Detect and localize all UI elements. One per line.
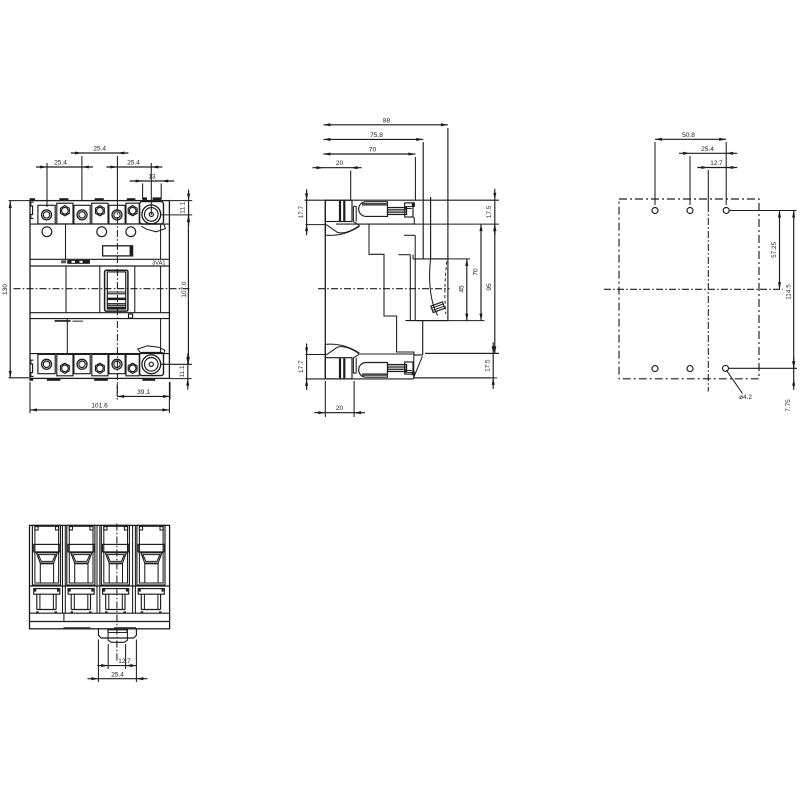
svg-text:57.25: 57.25 [771, 241, 778, 257]
svg-text:12.7: 12.7 [710, 160, 723, 167]
svg-text:11.1: 11.1 [180, 201, 187, 213]
svg-text:70: 70 [369, 147, 377, 154]
svg-text:70: 70 [473, 268, 480, 276]
svg-text:25.4: 25.4 [701, 146, 714, 153]
svg-text:25.4: 25.4 [127, 160, 140, 167]
svg-text:88: 88 [383, 117, 391, 124]
svg-text:17.5: 17.5 [485, 359, 492, 372]
svg-text:95: 95 [486, 283, 493, 291]
svg-text:107.0: 107.0 [181, 281, 188, 297]
svg-text:25.4: 25.4 [111, 671, 124, 678]
svg-text:17.5: 17.5 [486, 205, 493, 218]
svg-text:25.4: 25.4 [93, 146, 106, 153]
svg-text:3VA1: 3VA1 [152, 260, 165, 266]
svg-text:130: 130 [2, 284, 9, 295]
svg-text:7.75: 7.75 [785, 399, 792, 412]
svg-text:75.8: 75.8 [370, 132, 383, 139]
svg-text:20: 20 [336, 160, 344, 167]
svg-text:12.7: 12.7 [118, 658, 131, 665]
svg-text:13: 13 [148, 174, 156, 181]
svg-text:39.1: 39.1 [137, 389, 150, 396]
svg-text:101.6: 101.6 [91, 402, 108, 409]
svg-text:11.1: 11.1 [179, 365, 186, 377]
svg-text:20: 20 [336, 405, 344, 412]
svg-text:50.8: 50.8 [682, 132, 695, 139]
svg-text:17.7: 17.7 [298, 360, 305, 373]
svg-text:25.4: 25.4 [54, 160, 67, 167]
svg-text:17.7: 17.7 [298, 206, 305, 219]
svg-text:114.5: 114.5 [786, 284, 793, 300]
svg-text:ø4.2: ø4.2 [739, 394, 752, 401]
svg-text:45: 45 [459, 285, 466, 293]
